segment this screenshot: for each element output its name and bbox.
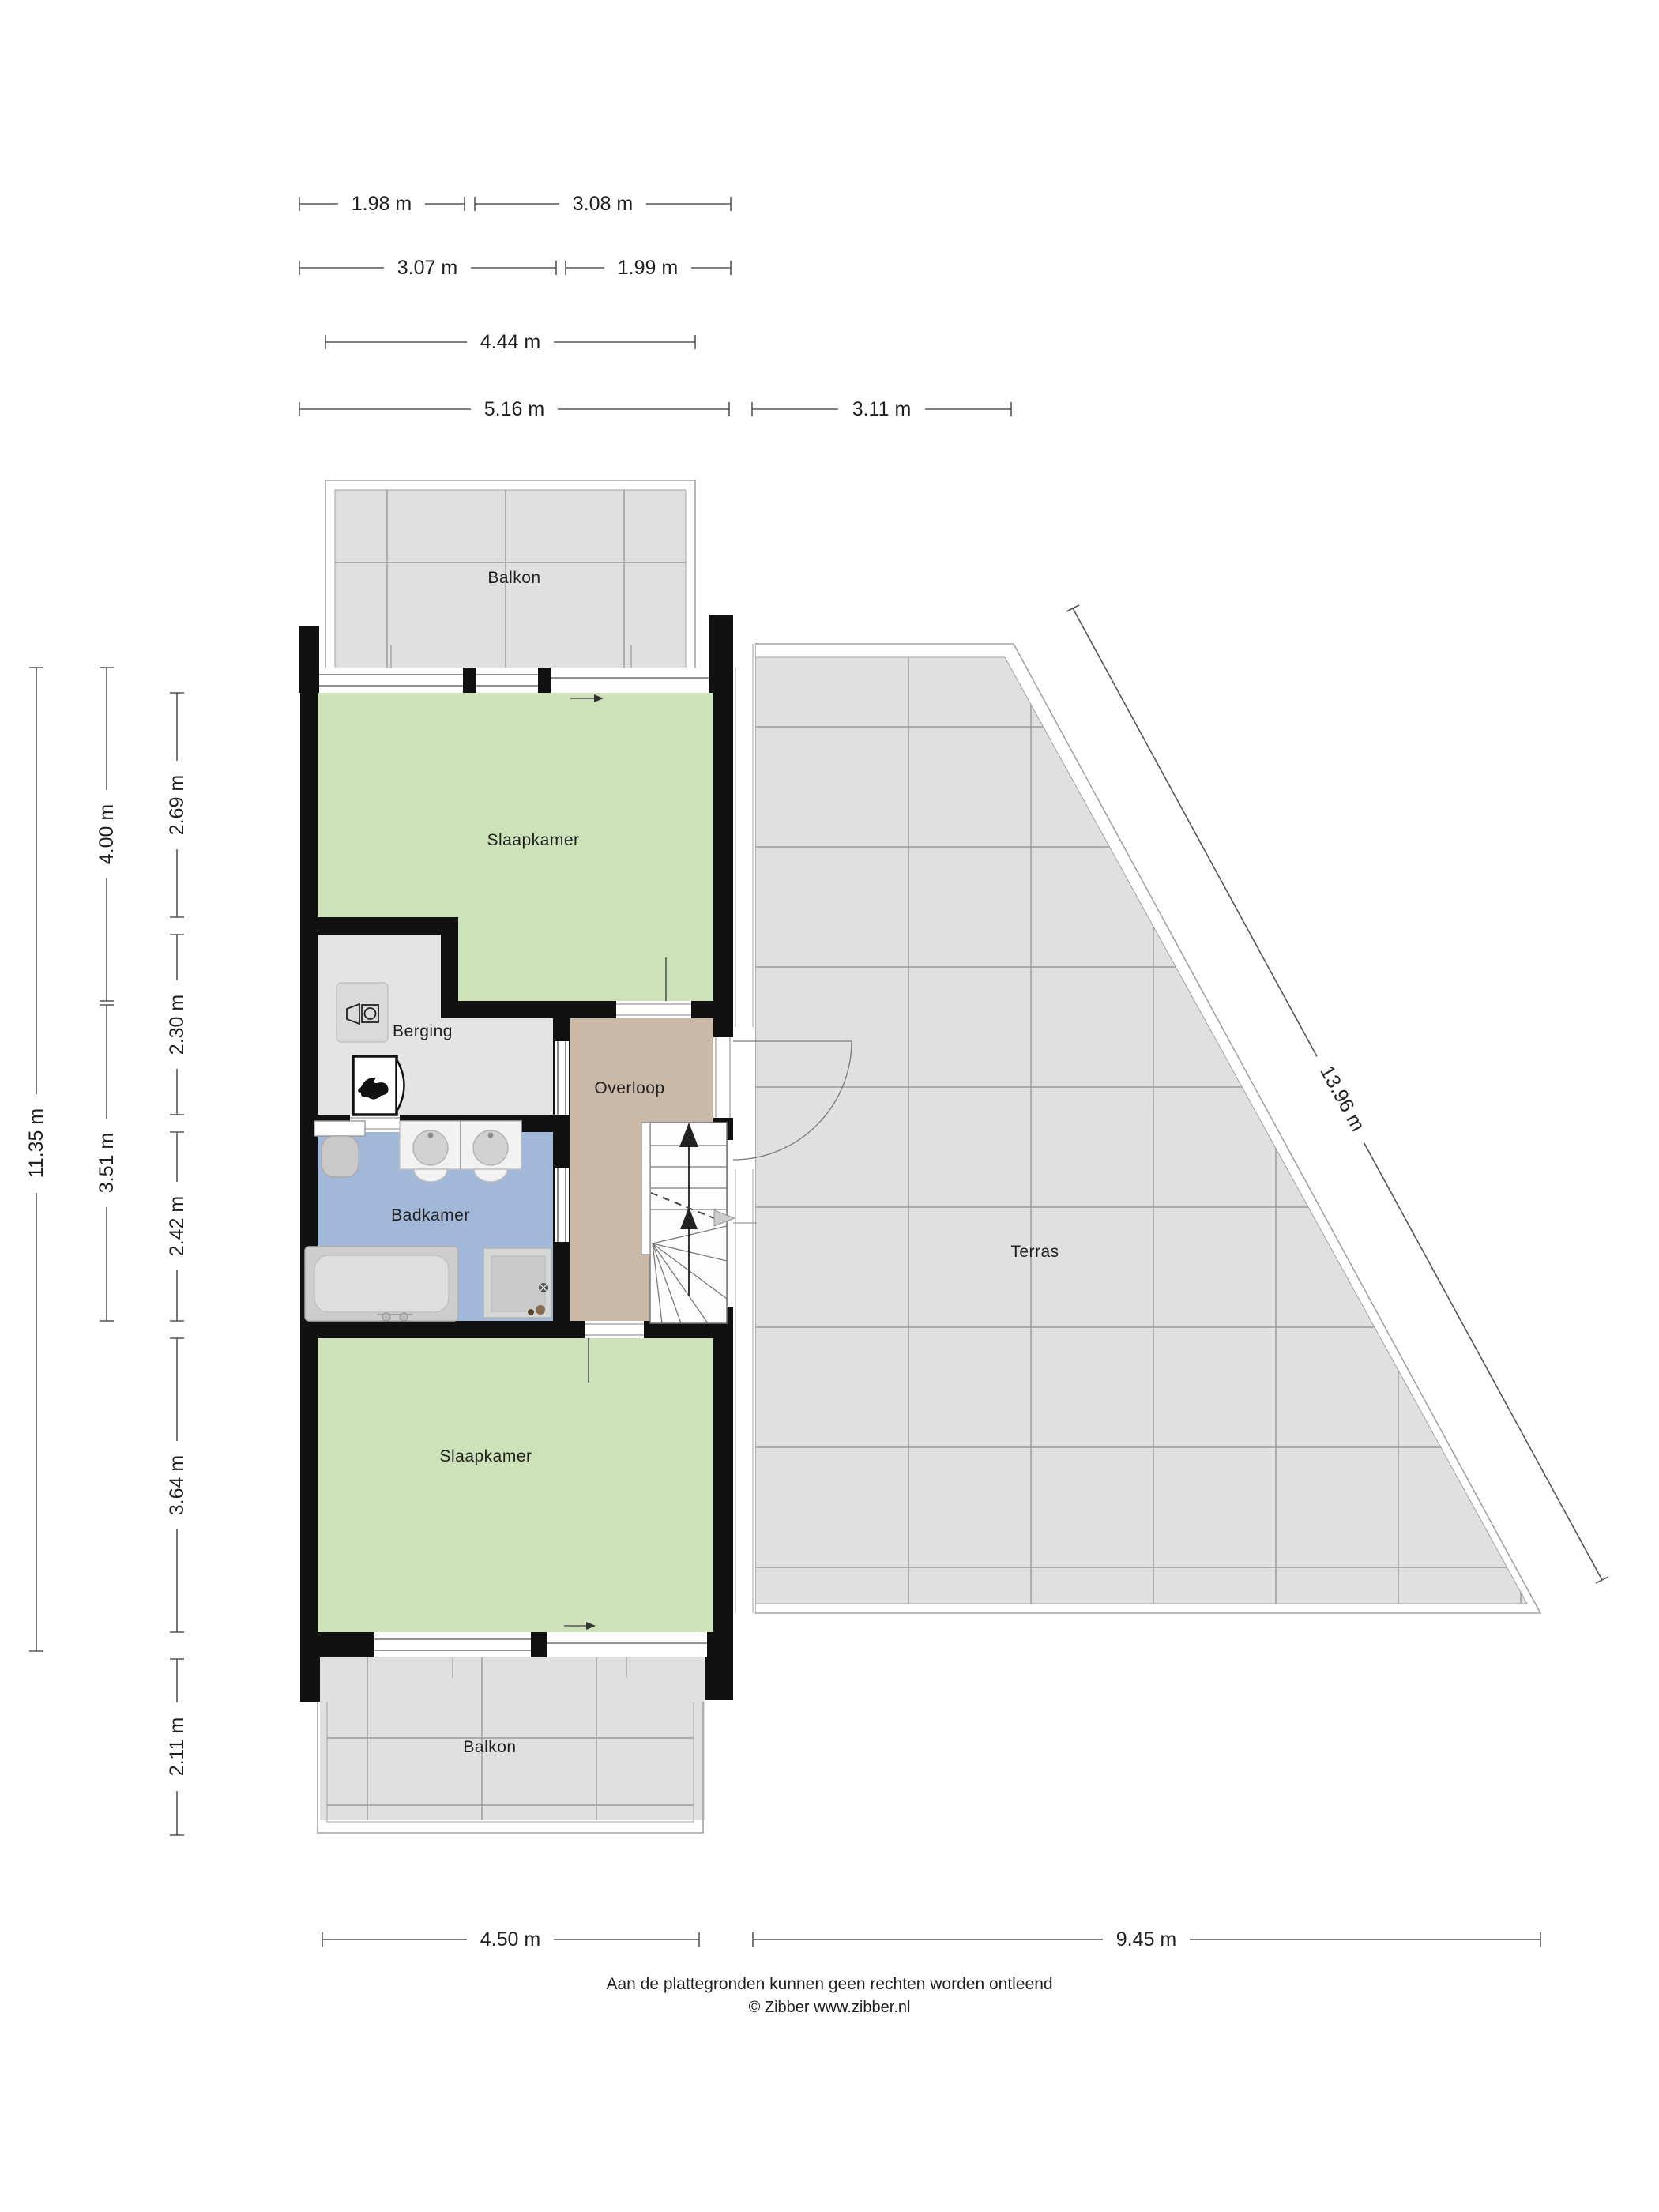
footer-disclaimer: Aan de plattegronden kunnen geen rechten… <box>0 1975 1659 2017</box>
faucet-icon <box>428 1133 434 1138</box>
dim-label: 4.50 m <box>480 1928 540 1951</box>
balkon-top: Balkon <box>325 480 695 668</box>
dim-top-row3: 4.44 m <box>325 330 695 354</box>
window-top-mid <box>476 668 538 693</box>
dim-label: 2.11 m <box>166 1717 188 1777</box>
staircase-stringer <box>641 1123 650 1255</box>
overloop-label: Overloop <box>594 1079 664 1097</box>
dim-top-row2: 3.07 m 1.99 m <box>299 256 731 280</box>
wall-stub-bottom-left <box>300 1657 320 1702</box>
dim-left-col3: 2.69 m 2.30 m 2.42 m 3.64 m 2.11 m <box>164 693 190 1835</box>
wall-stub-bottom-right <box>705 1657 733 1700</box>
copyright-text: © Zibber www.zibber.nl <box>0 1999 1659 2017</box>
dim-label: 3.64 m <box>166 1455 188 1515</box>
berging-label: Berging <box>393 1022 453 1040</box>
staircase <box>641 1123 735 1323</box>
terras-label: Terras <box>1010 1243 1059 1261</box>
badkamer-label: Badkamer <box>391 1206 470 1224</box>
dim-left-col1: 11.35 m <box>24 668 49 1651</box>
dim-bottom-row: 4.50 m 9.45 m <box>322 1928 1540 1951</box>
floorplan-page: Terras Balkon Balkon <box>0 0 1659 2212</box>
balkon-top-label: Balkon <box>487 569 540 587</box>
balkon-bottom-label: Balkon <box>463 1738 516 1756</box>
dim-label: 11.35 m <box>25 1108 47 1178</box>
dim-top-row1: 1.98 m 3.08 m <box>299 192 731 216</box>
toilet <box>314 1121 365 1177</box>
dim-label: 3.51 m <box>96 1133 118 1193</box>
balkon-bottom: Balkon <box>318 1657 705 1833</box>
dim-label: 9.45 m <box>1116 1928 1176 1951</box>
dim-label: 2.69 m <box>166 775 188 835</box>
wall-overloop-top-a <box>441 1001 616 1018</box>
dim-label: 5.16 m <box>484 398 544 420</box>
dim-diagonal-label: 13.96 m <box>1307 1048 1378 1147</box>
wall-berging-top <box>300 917 458 935</box>
floorplan-drawing: Terras Balkon Balkon <box>0 0 1659 2212</box>
wall-overloop-top-b <box>691 1001 733 1018</box>
dim-label: 4.00 m <box>96 804 118 864</box>
window-overloop-side-a <box>555 1041 569 1115</box>
faucet-icon <box>488 1133 494 1138</box>
dim-label: 3.11 m <box>852 398 912 420</box>
slaapkamer-bottom-floor <box>318 1338 713 1632</box>
terras-left-railing <box>733 644 755 1613</box>
slaapkamer-bottom-label: Slaapkamer <box>439 1447 532 1465</box>
terras-floor <box>755 657 1527 1604</box>
terras-area: Terras <box>733 644 1540 1613</box>
wall-left <box>300 668 318 1657</box>
dim-label: 2.30 m <box>166 995 188 1055</box>
wall-mid-bottom-a <box>300 1321 585 1338</box>
dim-label: 1.99 m <box>618 257 678 279</box>
bathtub <box>305 1247 458 1321</box>
boiler <box>353 1056 404 1115</box>
dim-label: 2.42 m <box>166 1196 188 1256</box>
slaapkamer-top-label: Slaapkamer <box>487 831 579 849</box>
dim-label: 3.07 m <box>397 257 457 279</box>
shower <box>483 1248 551 1318</box>
dim-top-row4: 5.16 m 3.11 m <box>299 397 1011 421</box>
disclaimer-text: Aan de plattegronden kunnen geen rechten… <box>0 1975 1659 1994</box>
dim-label: 3.08 m <box>573 193 633 215</box>
window-overloop-side-b <box>555 1168 569 1242</box>
dim-label: 1.98 m <box>352 193 412 215</box>
dim-left-col2: 4.00 m 3.51 m <box>94 668 119 1321</box>
dim-label: 4.44 m <box>480 331 540 353</box>
shower-drain-icon <box>536 1305 545 1315</box>
